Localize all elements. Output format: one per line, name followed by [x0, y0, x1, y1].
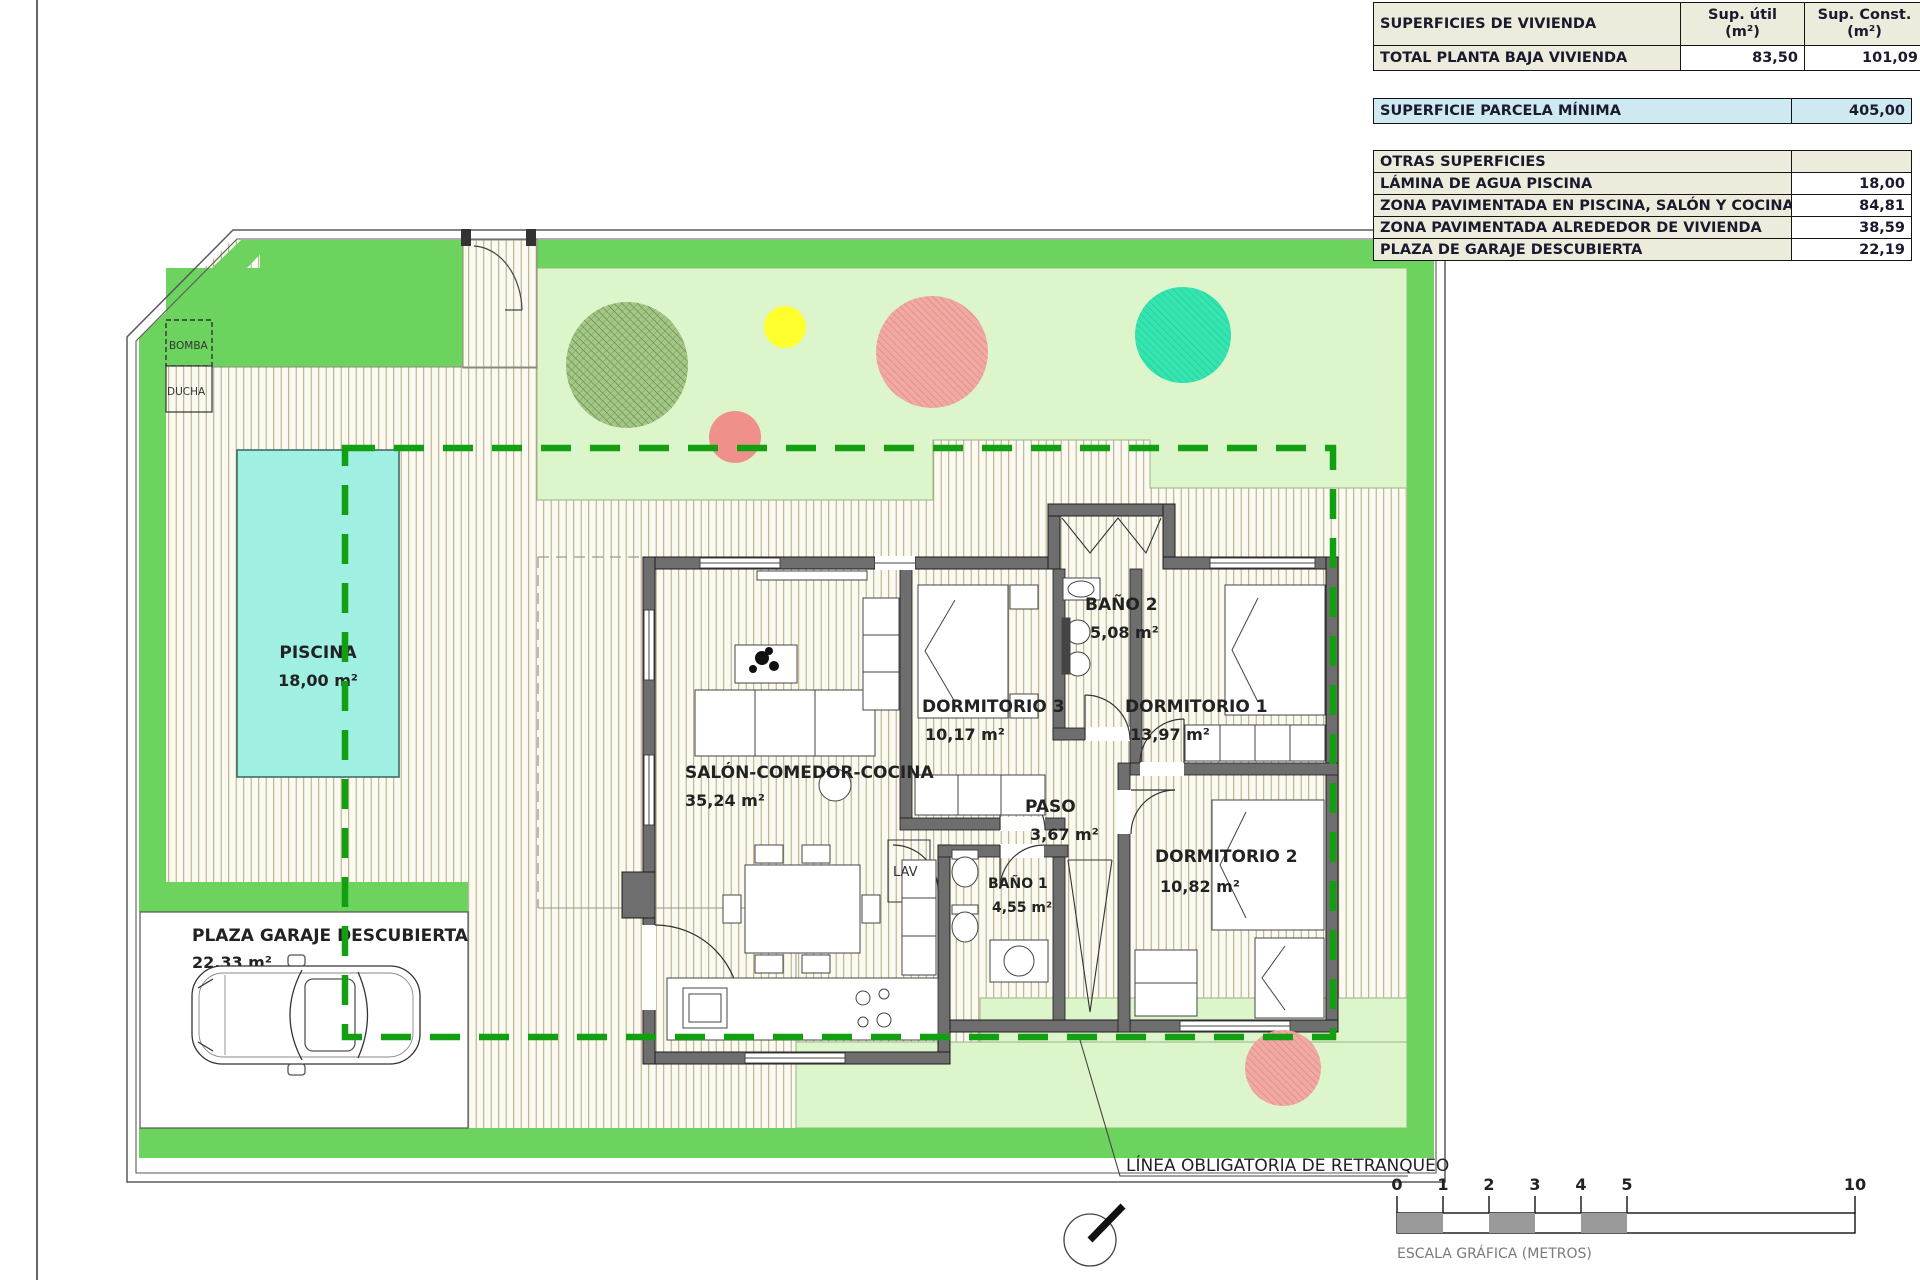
- dorm1-label: DORMITORIO 1: [1125, 697, 1268, 717]
- pool: PISCINA 18,00 m²: [237, 450, 399, 777]
- sheet: BOMBA DUCHA PISCINA 18,00 m² PLAZA GARAJ…: [0, 0, 1920, 1280]
- salon-label: SALÓN-COMEDOR-COCINA: [685, 761, 934, 783]
- bano1-label: BAÑO 1: [988, 875, 1048, 892]
- bano2-area: 5,08 m²: [1090, 623, 1159, 642]
- shrub-salmon-se-icon: [1245, 1030, 1321, 1106]
- otras-title-empty: [1792, 151, 1912, 173]
- scale-tick-2: 2: [1483, 1175, 1494, 1194]
- dorm3-area: 10,17 m²: [925, 725, 1005, 744]
- otras-row-label: PLAZA DE GARAJE DESCUBIERTA: [1374, 239, 1792, 261]
- scale-tick-0: 0: [1391, 1175, 1402, 1194]
- car: [192, 955, 420, 1075]
- scale-tick-10: 10: [1844, 1175, 1866, 1194]
- ducha-label: DUCHA: [167, 386, 206, 398]
- scale-tick-5: 5: [1621, 1175, 1632, 1194]
- bomba-box: BOMBA: [166, 320, 212, 366]
- dorm2-area: 10,82 m²: [1160, 877, 1240, 896]
- north-arrow-icon: [1064, 1206, 1123, 1266]
- garage-label: PLAZA GARAJE DESCUBIERTA: [192, 926, 469, 946]
- bano1-area: 4,55 m²: [992, 900, 1052, 916]
- dorm3-label: DORMITORIO 3: [922, 697, 1065, 717]
- otras-row-label: LÁMINA DE AGUA PISCINA: [1374, 173, 1792, 195]
- scale-tick-3: 3: [1529, 1175, 1540, 1194]
- otras-row-value: 22,19: [1792, 239, 1912, 261]
- otras-title: OTRAS SUPERFICIES: [1374, 151, 1792, 173]
- salon-area: 35,24 m²: [685, 791, 765, 810]
- garage-plaza: PLAZA GARAJE DESCUBIERTA 22,33 m²: [140, 912, 469, 1128]
- areas-table: SUPERFICIES DE VIVIENDA Sup. útil (m²) S…: [1373, 2, 1885, 261]
- parcela-label: SUPERFICIE PARCELA MÍNIMA: [1374, 99, 1792, 124]
- otras-row-value: 38,59: [1792, 217, 1912, 239]
- total-label: TOTAL PLANTA BAJA VIVIENDA: [1374, 46, 1681, 71]
- scale-caption: ESCALA GRÁFICA (METROS): [1397, 1245, 1592, 1262]
- ducha-box: DUCHA: [166, 366, 212, 412]
- paso-label: PASO: [1025, 797, 1076, 817]
- entrance-walkway: [463, 240, 537, 368]
- otras-row-label: ZONA PAVIMENTADA EN PISCINA, SALÓN Y COC…: [1374, 195, 1792, 217]
- shrub-salmon-icon: [709, 411, 761, 463]
- lav-label: LAV: [893, 865, 918, 880]
- bomba-label: BOMBA: [169, 340, 209, 352]
- col-sup-const: Sup. Const. (m²): [1805, 3, 1920, 46]
- dorm1-area: 13,97 m²: [1130, 725, 1210, 744]
- retranqueo-label: LÍNEA OBLIGATORIA DE RETRANQUEO: [1126, 1154, 1449, 1176]
- bano2-label: BAÑO 2: [1085, 592, 1158, 615]
- table-title: SUPERFICIES DE VIVIENDA: [1374, 3, 1681, 46]
- paso-area: 3,67 m²: [1030, 825, 1099, 844]
- graphic-scale: 0 1 2 3 4 5 10 ESCALA GRÁFICA (METROS): [1391, 1175, 1866, 1262]
- tree-yellow-icon: [764, 306, 806, 348]
- otras-row-value: 84,81: [1792, 195, 1912, 217]
- total-util: 83,50: [1681, 46, 1805, 71]
- parcela-value: 405,00: [1792, 99, 1912, 124]
- scale-tick-1: 1: [1437, 1175, 1448, 1194]
- otras-row-label: ZONA PAVIMENTADA ALREDEDOR DE VIVIENDA: [1374, 217, 1792, 239]
- otras-row-value: 18,00: [1792, 173, 1912, 195]
- total-const: 101,09: [1805, 46, 1920, 71]
- tree-teal-icon: [1135, 287, 1231, 383]
- tree-salmon-icon: [876, 296, 988, 408]
- col-sup-util: Sup. útil (m²): [1681, 3, 1805, 46]
- dorm2-label: DORMITORIO 2: [1155, 847, 1298, 867]
- scale-tick-4: 4: [1575, 1175, 1586, 1194]
- tree-olive-icon: [566, 302, 688, 428]
